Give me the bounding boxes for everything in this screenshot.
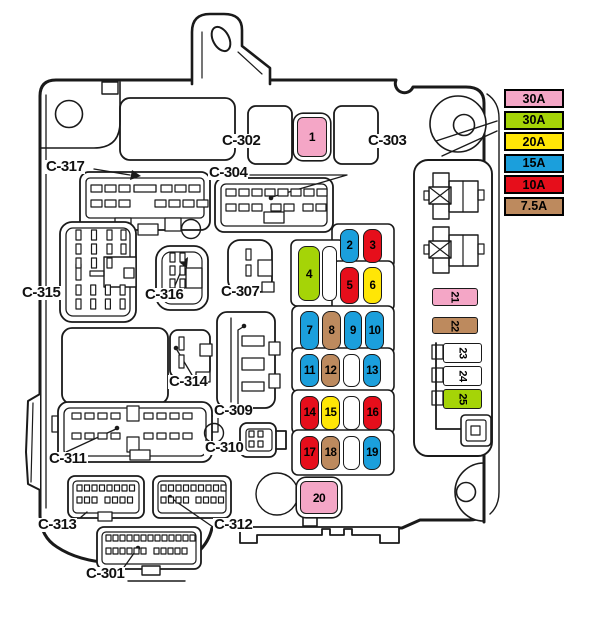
fuse-3: 3 xyxy=(363,229,382,263)
fuse-11: 11 xyxy=(300,354,319,387)
legend-30a-green: 30A xyxy=(504,111,564,130)
label-c317: C-317 xyxy=(45,160,85,174)
label-c312: C-312 xyxy=(213,518,253,532)
label-c307: C-307 xyxy=(220,285,260,299)
legend-7-5a-brown: 7.5A xyxy=(504,197,564,216)
fuse-22: 22 xyxy=(432,317,478,334)
label-c302: C-302 xyxy=(221,134,261,148)
right-bay xyxy=(414,160,492,456)
legend-15a-blue: 15A xyxy=(504,154,564,173)
label-c304: C-304 xyxy=(208,166,248,180)
bottom-rail xyxy=(240,527,399,543)
fuse-8: 8 xyxy=(322,311,341,350)
label-c315: C-315 xyxy=(21,286,61,300)
fuse-slot-24: 24 xyxy=(443,366,482,386)
fuse-1: 1 xyxy=(297,117,327,157)
fuse-box-diagram: C-302 C-303 C-317 C-304 C-315 C-316 C-30… xyxy=(0,0,616,632)
fuse-15: 15 xyxy=(321,396,340,430)
top-right-boss xyxy=(430,96,486,152)
fuse-18: 18 xyxy=(321,436,340,470)
fuse-4: 4 xyxy=(298,246,320,301)
empty-fuse-slot xyxy=(322,246,337,301)
label-c303: C-303 xyxy=(367,134,407,148)
legend-10a-red: 10A xyxy=(504,175,564,194)
empty-fuse-slot xyxy=(343,396,360,430)
fuse-12: 12 xyxy=(321,354,340,387)
fuse-7: 7 xyxy=(300,311,319,350)
fuse-21: 21 xyxy=(432,288,478,306)
fuse-14: 14 xyxy=(300,396,319,430)
fuse-slot-23: 23 xyxy=(443,343,482,363)
label-c311: C-311 xyxy=(48,452,88,466)
label-c309: C-309 xyxy=(213,404,253,418)
fuse-20: 20 xyxy=(300,481,338,514)
legend-30a-pink: 30A xyxy=(504,89,564,108)
fuse-10: 10 xyxy=(365,311,384,350)
label-c316: C-316 xyxy=(144,288,184,302)
connector-c309 xyxy=(217,312,280,408)
fuse-5: 5 xyxy=(340,267,359,304)
fuse-16: 16 xyxy=(363,396,382,430)
label-c301: C-301 xyxy=(85,567,125,581)
label-c313: C-313 xyxy=(37,518,77,532)
label-c314: C-314 xyxy=(168,375,208,389)
label-c310: C-310 xyxy=(204,441,244,455)
top-mounting-tab xyxy=(192,14,270,84)
fuse-17: 17 xyxy=(300,436,319,470)
amperage-legend: 30A 30A 20A 15A 10A 7.5A xyxy=(504,89,564,219)
empty-fuse-slot xyxy=(343,354,360,387)
fuse-2: 2 xyxy=(340,229,359,263)
legend-20a-yellow: 20A xyxy=(504,132,564,151)
fuse-13: 13 xyxy=(363,354,381,387)
empty-fuse-slot xyxy=(343,436,360,470)
fuse-6: 6 xyxy=(363,267,382,304)
fuse-19: 19 xyxy=(363,436,381,470)
fuse-9: 9 xyxy=(344,311,362,350)
fuse-25: 25 xyxy=(443,389,482,409)
